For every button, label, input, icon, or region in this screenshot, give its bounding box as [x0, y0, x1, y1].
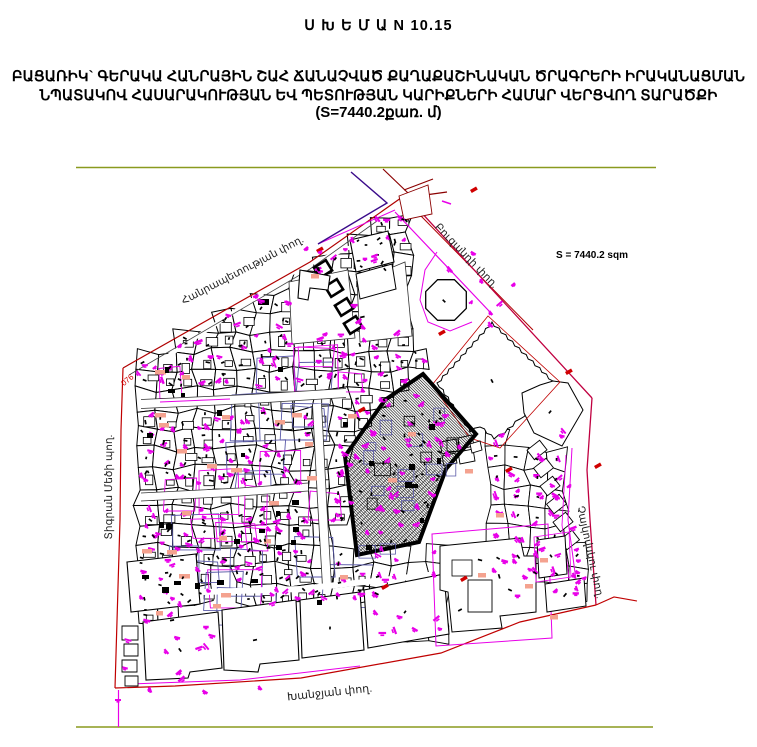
svg-text:Տիգրան Մեծի պող.: Տիգրան Մեծի պող. [103, 435, 115, 540]
svg-text:S = 7440.2 sqm: S = 7440.2 sqm [556, 250, 628, 261]
svg-text:Խանջյան փող.: Խանջյան փող. [287, 683, 373, 704]
